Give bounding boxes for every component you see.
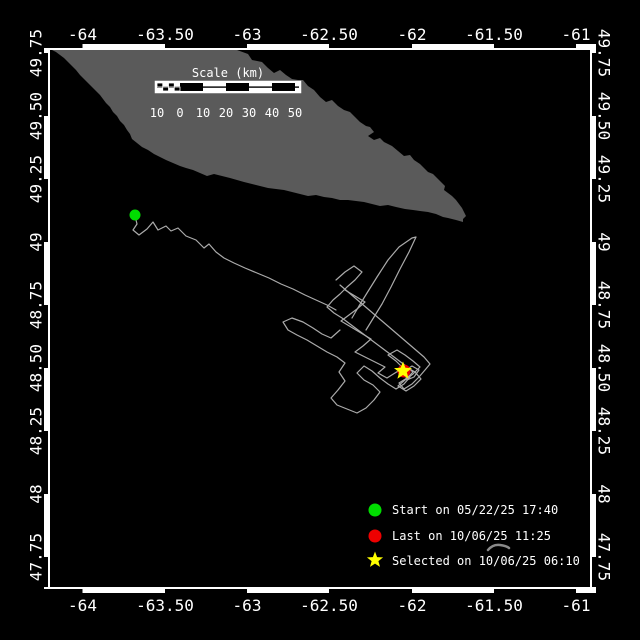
y-tick-label: 47.75 <box>595 533 614 581</box>
x-tick-label: -64 <box>68 25 97 44</box>
scale-bar-segment <box>226 83 249 91</box>
x-tick-label: -63.50 <box>136 25 194 44</box>
y-tick-label: 48.50 <box>595 344 614 392</box>
scale-label: 10 <box>150 106 164 120</box>
frame-tick-dash <box>165 589 247 593</box>
scale-bar-title: Scale (km) <box>192 66 264 80</box>
x-tick-label: -63 <box>233 25 262 44</box>
x-tick-label: -61 <box>562 25 591 44</box>
x-tick-label: -61.50 <box>465 596 523 615</box>
x-tick-label: -62.50 <box>300 25 358 44</box>
y-tick-label: 49 <box>27 232 46 251</box>
scale-label: 20 <box>219 106 233 120</box>
start-point-marker[interactable] <box>130 210 141 221</box>
scale-label: 30 <box>242 106 256 120</box>
y-tick-label: 48.25 <box>595 407 614 455</box>
y-tick-label: 48.75 <box>27 281 46 329</box>
frame-tick-dash <box>329 44 412 48</box>
frame-tick-dash <box>44 44 83 48</box>
y-tick-label: 48 <box>595 484 614 503</box>
x-tick-label: -62 <box>398 596 427 615</box>
frame-tick-dash <box>494 589 576 593</box>
scale-bar-subcell <box>169 83 175 87</box>
y-axis-right-labels: 49.75 49.50 49.25 49 48.75 48.50 48.25 4… <box>595 29 614 581</box>
legend-start-circle-icon <box>369 504 382 517</box>
y-tick-label: 48 <box>27 484 46 503</box>
y-tick-label: 48.25 <box>27 407 46 455</box>
x-axis-top-labels: -64 -63.50 -63 -62.50 -62 -61.50 -61 <box>68 25 590 44</box>
scale-bar-subcell <box>163 87 169 91</box>
frame-tick-dash <box>165 44 247 48</box>
x-tick-label: -63.50 <box>136 596 194 615</box>
legend-last-circle-icon <box>369 530 382 543</box>
scale-bar-segment <box>272 83 295 91</box>
scale-bar-subcell <box>174 87 180 91</box>
y-tick-label: 47.75 <box>27 533 46 581</box>
y-tick-label: 49.75 <box>27 29 46 77</box>
scale-bar-subcell <box>157 83 163 87</box>
x-tick-label: -63 <box>233 596 262 615</box>
scale-label: 40 <box>265 106 279 120</box>
y-tick-label: 48.75 <box>595 281 614 329</box>
legend: Start on 05/22/25 17:40 Last on 10/06/25… <box>367 503 580 568</box>
y-tick-label: 49 <box>595 232 614 251</box>
legend-last-label: Last on 10/06/25 11:25 <box>392 529 551 543</box>
x-tick-label: -61.50 <box>465 25 523 44</box>
map-canvas[interactable]: -64 -63.50 -63 -62.50 -62 -61.50 -61 -64… <box>0 0 640 640</box>
x-tick-label: -62 <box>398 25 427 44</box>
y-tick-label: 49.75 <box>595 29 614 77</box>
x-tick-label: -62.50 <box>300 596 358 615</box>
scale-label: 0 <box>176 106 183 120</box>
legend-start-label: Start on 05/22/25 17:40 <box>392 503 558 517</box>
y-tick-label: 49.25 <box>27 155 46 203</box>
y-tick-label: 49.50 <box>595 92 614 140</box>
plot-background <box>0 0 640 640</box>
legend-selected-label: Selected on 10/06/25 06:10 <box>392 554 580 568</box>
map-window: -64 -63.50 -63 -62.50 -62 -61.50 -61 -64… <box>0 0 640 640</box>
x-axis-bottom-labels: -64 -63.50 -63 -62.50 -62 -61.50 -61 <box>68 596 590 615</box>
y-tick-label: 48.50 <box>27 344 46 392</box>
x-tick-label: -61 <box>562 596 591 615</box>
scale-label: 50 <box>288 106 302 120</box>
scale-bar-segment <box>180 83 203 91</box>
y-tick-label: 49.50 <box>27 92 46 140</box>
x-tick-label: -64 <box>68 596 97 615</box>
y-tick-label: 49.25 <box>595 155 614 203</box>
frame-tick-dash <box>44 589 83 593</box>
scale-label: 10 <box>196 106 210 120</box>
frame-tick-dash <box>494 44 576 48</box>
y-axis-left-labels: 49.75 49.50 49.25 49 48.75 48.50 48.25 4… <box>27 29 46 581</box>
frame-tick-dash <box>329 589 412 593</box>
